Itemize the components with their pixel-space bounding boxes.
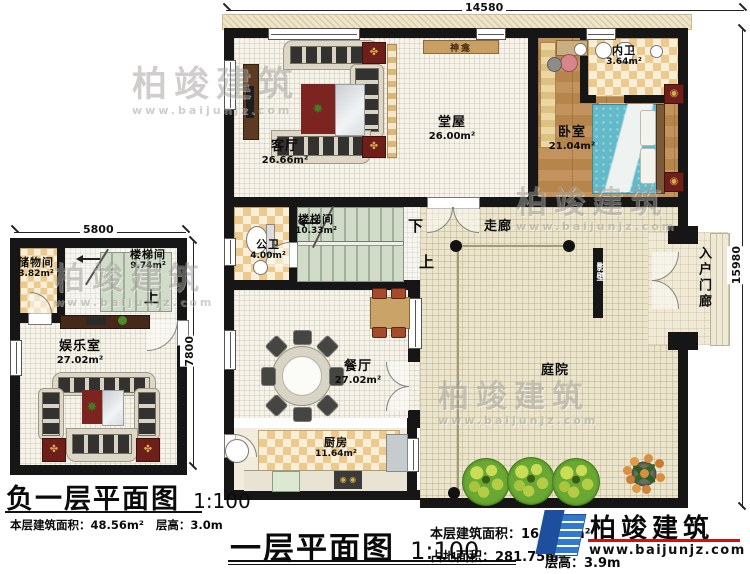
- shower-head: [650, 45, 663, 58]
- storage-door: [28, 313, 52, 325]
- rug: ✸: [82, 390, 102, 424]
- shrine-shelf: 神龛: [423, 40, 499, 54]
- nightstand: ◉: [664, 84, 684, 104]
- chair: [261, 367, 276, 386]
- wall-kitchen-bottom: [224, 490, 420, 500]
- logo-red-line: [588, 539, 740, 542]
- tree: [552, 458, 600, 506]
- screen-partition: [387, 44, 397, 158]
- sofa-cushions: [290, 46, 372, 64]
- dim-height-first-floor: 15980: [727, 246, 746, 284]
- wall-right-upper: [678, 28, 688, 232]
- room-label-living: 客厅 26.66m²: [245, 140, 325, 166]
- plant-icon: ✸: [87, 400, 98, 415]
- window: [224, 60, 236, 110]
- vanity-chair: [560, 54, 578, 72]
- wall-hall-bedroom: [528, 38, 538, 197]
- room-label-corridor: 走廊: [470, 220, 526, 235]
- window: [586, 28, 616, 40]
- room-label-kitchen: 厨房 11.64m²: [306, 437, 366, 460]
- stair-up-label: 上: [144, 286, 159, 307]
- chair: [391, 288, 406, 299]
- room-label-public-bath: 公卫 4.00m²: [242, 239, 294, 262]
- column: [450, 240, 462, 252]
- floor-plan-sheet: 14580 15980: [0, 0, 750, 574]
- lazy-susan: [282, 356, 322, 396]
- sofa-cushions: [42, 392, 60, 436]
- room-label-hall: 堂屋 26.00m²: [412, 116, 492, 142]
- stair-arrow-head: [76, 255, 83, 263]
- room-label-inner-bath: 内卫 3.64m²: [598, 45, 650, 68]
- dim-height-basement: 7800: [180, 336, 199, 367]
- dim-width-basement: 5800: [80, 223, 117, 236]
- side-table: ✤: [42, 438, 66, 462]
- bwall-bottom: [10, 465, 187, 475]
- tree: [507, 457, 555, 505]
- basement-stats: 本层建筑面积：48.56m² 层高：3.0m: [10, 517, 223, 533]
- chair: [391, 327, 406, 338]
- chair: [372, 288, 387, 299]
- window: [224, 238, 236, 266]
- stair-flight-lower: [297, 245, 404, 282]
- side-table: ✤: [362, 42, 386, 64]
- sink: [253, 260, 268, 275]
- square-table: [370, 297, 410, 329]
- stool: [547, 57, 562, 72]
- window: [224, 330, 236, 370]
- utility-table: [225, 439, 249, 463]
- room-label-stairwell: 楼梯间 10.33m²: [290, 214, 342, 237]
- wall-dining-east: [408, 410, 420, 428]
- pillow: [640, 148, 656, 184]
- porch-pier-top: [668, 226, 698, 244]
- side-table: ✤: [362, 136, 386, 158]
- chair: [372, 327, 387, 338]
- window: [407, 438, 419, 472]
- tv: [86, 317, 106, 325]
- stair-up-label: 上: [419, 251, 434, 272]
- wall-dining-east: [408, 280, 420, 298]
- dim-width-first-floor: 14580: [462, 1, 506, 14]
- side-table: ✤: [136, 438, 160, 462]
- pillow: [640, 110, 656, 146]
- nightstand: ◉: [664, 172, 684, 192]
- room-label-dining: 餐厅 27.02m²: [318, 360, 398, 386]
- stair-arrow: [82, 258, 100, 260]
- coffee-table-glass: [335, 84, 365, 136]
- coffee-table-glass: [102, 390, 124, 426]
- veranda-edge-line: [457, 247, 459, 492]
- window: [476, 28, 506, 40]
- sofa-cushions: [138, 392, 156, 436]
- column: [563, 240, 575, 252]
- shrine-label: 神龛: [450, 41, 472, 54]
- wall-mid-west: [234, 197, 427, 207]
- wall-courtyard-bottom: [420, 498, 688, 508]
- room-label-recreation: 娱乐室 27.02m²: [48, 340, 112, 366]
- basement-title-scale: 1:100: [193, 489, 251, 513]
- window: [10, 340, 22, 376]
- plant: [118, 316, 127, 325]
- kitchen-counter: [244, 470, 407, 491]
- veranda-edge-line: [456, 245, 569, 247]
- porch-pier-bottom: [668, 332, 698, 350]
- room-label-basement-stairwell: 楼梯间 9.74m²: [122, 249, 174, 272]
- window: [408, 298, 422, 349]
- stove: ◉ ◉: [334, 471, 362, 489]
- living-hall-floor: [234, 38, 538, 197]
- room-label-courtyard: 庭院: [525, 364, 585, 379]
- stair-down-label: 下: [408, 215, 423, 236]
- screen-wall: [593, 248, 603, 318]
- room-label-storage: 储物间 3.82m²: [12, 257, 60, 280]
- plant-icon: ✸: [313, 102, 324, 117]
- screen-wall-label: 影壁: [594, 262, 607, 282]
- fruit-icon: [640, 469, 649, 478]
- title-underline: [5, 511, 202, 513]
- window: [268, 28, 360, 40]
- fridge: [272, 471, 300, 492]
- wall-innerbath-bottom: [580, 95, 596, 103]
- bwall-top: [10, 238, 187, 248]
- wall-right-lower: [678, 345, 688, 508]
- logo-url: www.baijunjz.com: [589, 543, 746, 558]
- tv: [246, 86, 254, 118]
- wall-dining-east: [408, 347, 420, 362]
- chair: [293, 330, 312, 345]
- wall-mid-east: [478, 197, 688, 207]
- lamp: [574, 43, 587, 56]
- tree: [462, 458, 510, 506]
- sofa-cushions: [72, 434, 132, 454]
- entry-porch-label: 入户门廊: [694, 246, 713, 310]
- kitchen-sink: [386, 434, 408, 472]
- living-rug: ✸: [301, 84, 335, 134]
- flower-pot: [622, 452, 666, 496]
- chair: [293, 407, 312, 422]
- room-label-bedroom: 卧室 21.04m²: [532, 126, 612, 152]
